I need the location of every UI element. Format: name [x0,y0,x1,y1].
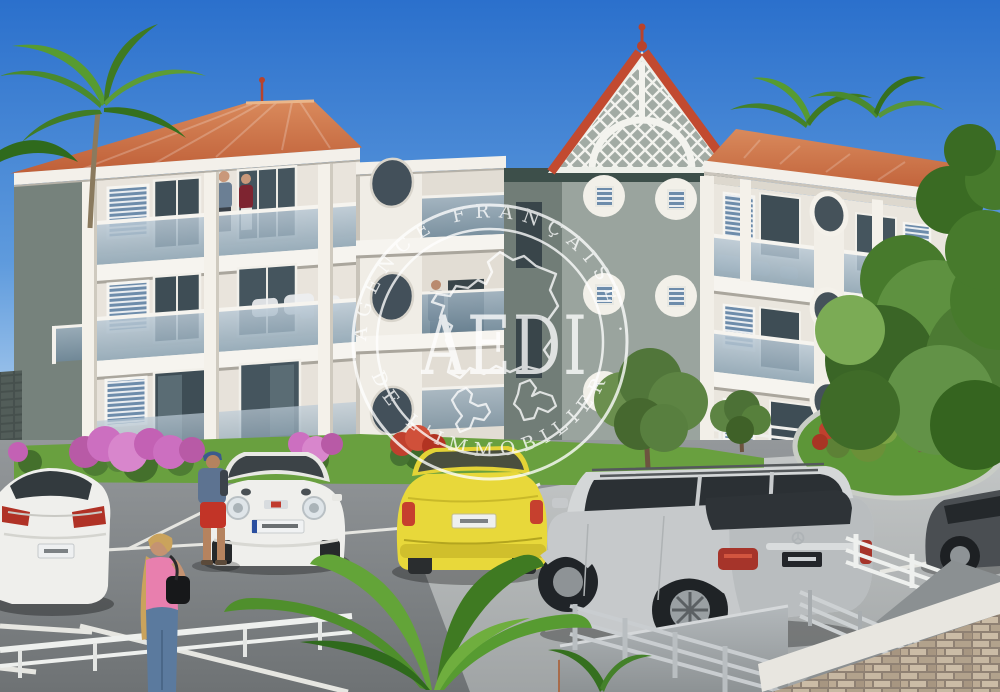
watermark-brand-text: AEDI [421,298,589,393]
roof-ridge [246,101,314,103]
brand-badge-icon [271,502,281,508]
rendering-canvas: AGENCE FRANÇAISE · DE L'IMMOBILIER AEDI [0,0,1000,692]
handbag [166,576,190,604]
scene: AGENCE FRANÇAISE · DE L'IMMOBILIER AEDI [0,0,1000,692]
left-wing [0,148,360,478]
car-white-coupe [0,468,114,616]
